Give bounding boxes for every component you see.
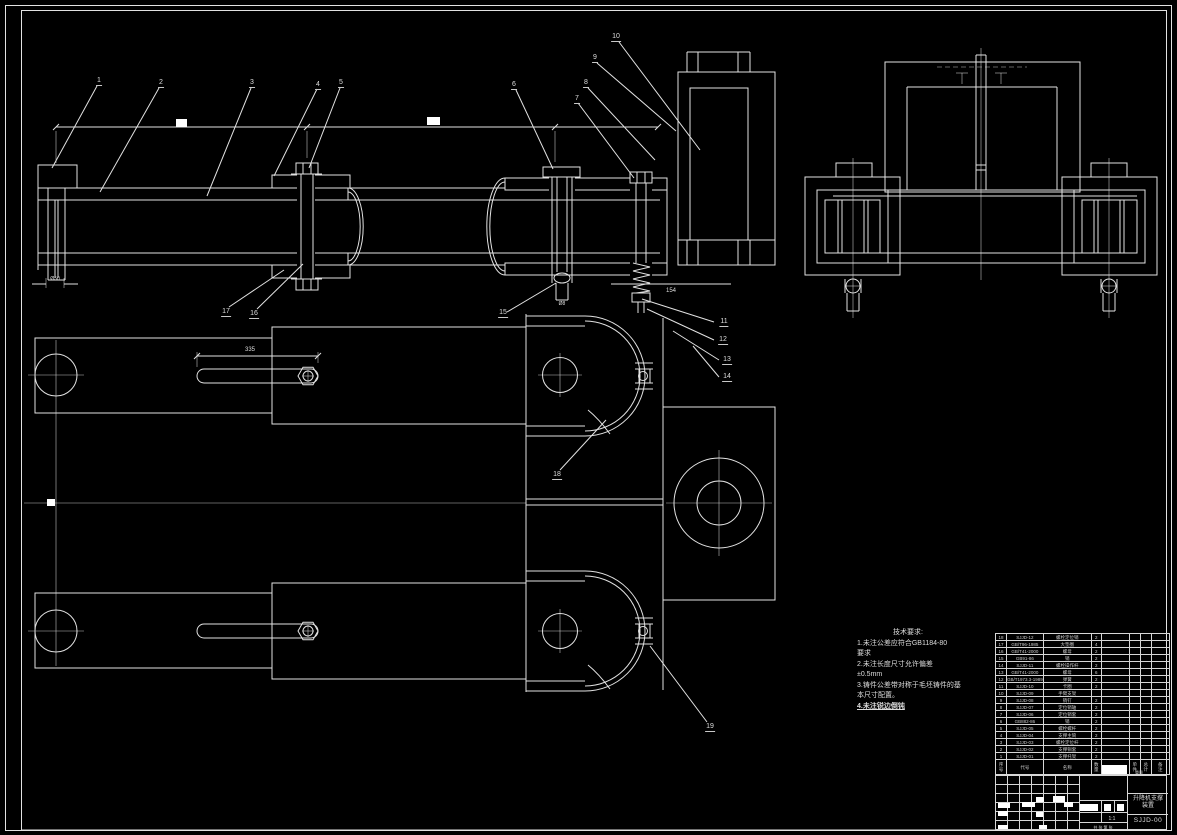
bom-cell: 17 [996,641,1007,648]
left-clamp [805,158,900,318]
redacted-field [1022,802,1035,807]
bom-cell: 7 [996,711,1007,718]
callout-4: 4 [315,81,321,90]
bom-cell [1129,746,1140,753]
bom-cell [1140,718,1151,725]
bom-cell: 定位销轴 [1043,704,1091,711]
tech-line: 本尺寸配置。 [857,691,991,702]
bom-cell: GB91-86 [1007,655,1044,662]
bom-cell: 14 [996,662,1007,669]
bom-cell [1151,690,1169,697]
bom-cell: 销 [1043,718,1091,725]
redacted-field [998,825,1008,829]
bom-header-cell: 备注 [1151,760,1169,775]
technical-requirements: 技术要求: 1.未注公差应符合GB1184-80 要求 2.未注长度尺寸允许偏差… [857,628,991,712]
top-hook [526,316,653,436]
bom-cell: 2 [1091,753,1101,760]
bom-cell [1151,662,1169,669]
bom-cell [1101,641,1129,648]
mounting-bracket [667,52,775,275]
bom-cell: 2 [1091,648,1101,655]
bom-cell [1101,753,1129,760]
bom-cell [1101,704,1129,711]
bom-cell [1151,725,1169,732]
callout-6: 6 [511,81,517,90]
bom-cell [1091,690,1101,697]
bom-cell: SJJD-03 [1007,739,1044,746]
redacted-field [998,803,1010,808]
bom-cell: 卡圈 [1043,683,1091,690]
bom-cell [1129,697,1140,704]
bom-cell: SJJD-05 [1007,725,1044,732]
bom-cell: 2 [996,746,1007,753]
bom-cell: 5 [996,725,1007,732]
bom-cell: 2 [1091,718,1101,725]
bom-cell [1129,662,1140,669]
bom-cell: GB/T41-2000 [1007,648,1044,655]
bom-cell [1101,648,1129,655]
bom-row: 12GB/T1973.3-1989弹簧2 [996,676,1170,683]
bom-row: 14SJJD-11螺栓操作杆2 [996,662,1170,669]
tech-title: 技术要求: [857,628,991,639]
bom-cell [1101,662,1129,669]
bom-cell: SJJD-11 [1007,662,1044,669]
bom-cell [1151,746,1169,753]
bom-row: 8SJJD-07定位销轴2 [996,704,1170,711]
bom-cell: 支撑主筒 [1043,732,1091,739]
bom-row: 17GB/T96-1985大垫圈4 [996,641,1170,648]
bom-cell [1129,718,1140,725]
bom-cell: 2 [1091,655,1101,662]
bom-cell [1140,662,1151,669]
bom-cell [1129,648,1140,655]
callout-7: 7 [574,95,580,104]
callout-15: 15 [498,309,508,318]
bom-cell [1151,634,1169,641]
bom-cell [1151,655,1169,662]
bom-cell [1151,753,1169,760]
bom-cell: 11 [996,683,1007,690]
callout-10: 10 [611,33,621,42]
bom-cell: SJJD-09 [1007,690,1044,697]
bom-cell: 螺栓操作杆 [1043,662,1091,669]
sheet-info: 共 张 第 张 [1080,824,1126,831]
dimension-text: 335 [245,347,255,353]
bom-cell [1140,704,1151,711]
dimension-text: 154 [666,288,676,294]
bottom-hook [526,571,653,691]
bom-cell [1151,683,1169,690]
bom-cell [1140,634,1151,641]
bom-cell: 2 [1091,662,1101,669]
callout-18: 18 [552,471,562,480]
bom-cell [1101,732,1129,739]
bom-cell [1129,683,1140,690]
bom-cell: GB882-86 [1007,718,1044,725]
bom-cell [1140,711,1151,718]
bom-cell [1129,641,1140,648]
bom-cell [1101,655,1129,662]
top-arm [28,327,526,424]
spring-rod [630,172,652,313]
bom-cell: 2 [1091,634,1101,641]
bom-cell [1151,739,1169,746]
tech-line: 3.铸件公差带对称于毛坯铸件的基 [857,681,991,692]
bom-cell: SJJD-10 [1007,683,1044,690]
bom-cell: SJJD-12 [1007,634,1044,641]
bom-cell: 2 [1091,676,1101,683]
bom-cell: 12 [996,676,1007,683]
bom-row: 10SJJD-09手臂支架 [996,690,1170,697]
bom-cell: 支撑托架 [1043,753,1091,760]
bom-cell: 4 [996,732,1007,739]
bom-cell [1140,676,1151,683]
redacted-field [1039,825,1047,829]
bom-cell: SJJD-08 [1007,697,1044,704]
bom-cell [1129,690,1140,697]
bom-cell: 2 [1091,725,1101,732]
callout-8: 8 [583,79,589,88]
bom-cell [1140,732,1151,739]
redacted-field [1064,802,1073,807]
bom-cell [1129,655,1140,662]
bom-cell [1151,704,1169,711]
tech-line: 1.未注公差应符合GB1184-80 [857,639,991,650]
bom-cell [1129,704,1140,711]
bom-cell [1151,676,1169,683]
right-clamp [1062,158,1157,318]
bom-cell [1101,683,1129,690]
bom-cell [1140,746,1151,753]
bom-cell: SJJD-07 [1007,704,1044,711]
bom-cell: 1 [996,753,1007,760]
bom-cell [1101,669,1129,676]
redacted-material-header [1102,765,1127,774]
bom-header-cell: 名称 [1043,760,1091,775]
bom-row: 13GB/T41-2000螺母6 [996,669,1170,676]
bom-cell [1101,725,1129,732]
bom-cell [1151,732,1169,739]
callout-19: 19 [705,723,715,732]
bom-cell: 定位销套 [1043,711,1091,718]
bom-header-cell: 序号 [996,760,1007,775]
bom-cell: 螺栓螺杆 [1043,725,1091,732]
bom-cell: 13 [996,669,1007,676]
bom-cell [1140,669,1151,676]
callout-13: 13 [722,356,732,365]
bom-cell: SJJD-04 [1007,732,1044,739]
bom-cell: 9 [996,697,1007,704]
callout-3: 3 [249,79,255,88]
bom-cell: 15 [996,655,1007,662]
plan-view [24,314,775,692]
drawing-scale: 1:1 [1099,816,1125,823]
tech-line: ±0.5mm [857,670,991,681]
bom-cell: 手臂支架 [1043,690,1091,697]
bom-cell [1129,739,1140,746]
bom-cell: 10 [996,690,1007,697]
bom-cell: 2 [1091,697,1101,704]
redacted-field [998,811,1008,816]
bom-cell: 大垫圈 [1043,641,1091,648]
bom-cell: 2 [1091,683,1101,690]
left-pin [48,188,65,280]
callout-17: 17 [221,308,231,317]
redacted-field [1117,804,1124,811]
bom-cell [1101,718,1129,725]
bom-cell [1101,634,1129,641]
bom-cell: SJJD-02 [1007,746,1044,753]
title-block: 升降机支撑 装置 SJJD-00 1:1 共 张 第 张 [995,775,1167,830]
bom-row: 11SJJD-10卡圈2 [996,683,1170,690]
callout-16: 16 [249,310,259,319]
section-view [38,52,775,313]
bom-row: 18SJJD-12螺栓定位销2 [996,634,1170,641]
bom-cell [1129,732,1140,739]
callout-9: 9 [592,54,598,63]
callout-12: 12 [718,336,728,345]
bom-row: 5SJJD-05螺栓螺杆2 [996,725,1170,732]
redacted-field [1080,804,1098,811]
bom-cell: SJJD-01 [1007,753,1044,760]
bom-cell [1101,697,1129,704]
bom-cell [1129,753,1140,760]
tech-line: 要求 [857,649,991,660]
bom-cell [1129,634,1140,641]
bom-cell [1140,753,1151,760]
bom-cell: 8 [996,704,1007,711]
bom-row: 1SJJD-01支撑托架2 [996,753,1170,760]
redaction-boxes [47,117,440,506]
bom-cell [1151,711,1169,718]
bom-cell: 2 [1091,704,1101,711]
bom-row: 16GB/T41-2000螺母2 [996,648,1170,655]
redacted-field [1104,804,1111,811]
callout-1: 1 [96,77,102,86]
bottom-arm [28,583,526,679]
bom-cell: 支撑铜套 [1043,746,1091,753]
bom-cell [1101,676,1129,683]
bom-cell [1151,697,1169,704]
bom-cell: SJJD-06 [1007,711,1044,718]
callout-2: 2 [158,79,164,88]
bom-cell: 螺母 [1043,648,1091,655]
bom-cell: 螺栓定位杆 [1043,739,1091,746]
bom-cell [1101,690,1129,697]
bom-cell [1101,739,1129,746]
bom-cell: 销钉 [1043,697,1091,704]
bom-header-cell: 代号 [1007,760,1044,775]
end-view [805,48,1157,318]
bom-cell [1151,641,1169,648]
bom-cell [1140,725,1151,732]
callout-14: 14 [722,373,732,382]
bom-cell [1140,641,1151,648]
bom-row: 3SJJD-03螺栓定位杆2 [996,739,1170,746]
bom-row: 15GB91-86销2 [996,655,1170,662]
dimension-text: Ø50 [50,276,59,282]
bom-cell [1140,683,1151,690]
bom-cell: 18 [996,634,1007,641]
drawing-number: SJJD-00 [1129,817,1167,824]
bom-cell: 销 [1043,655,1091,662]
bom-row: 2SJJD-02支撑铜套2 [996,746,1170,753]
callout-11: 11 [719,318,728,327]
dimension-lines [32,124,731,367]
bom-cell [1101,711,1129,718]
bom-cell: 2 [1091,711,1101,718]
tech-line: 2.未注长度尺寸允许偏差 [857,660,991,671]
bom-cell [1140,739,1151,746]
bom-cell [1151,718,1169,725]
callout-leaders [52,42,719,722]
callout-5: 5 [338,79,344,88]
bom-cell [1151,669,1169,676]
bom-cell [1129,676,1140,683]
bom-cell: 2 [1091,739,1101,746]
bom-cell [1140,648,1151,655]
bom-row: 7SJJD-06定位销套2 [996,711,1170,718]
bom-cell: 2 [1091,732,1101,739]
redacted-field [1036,797,1044,802]
bom-cell: GB/T96-1985 [1007,641,1044,648]
tech-line: 4.未注锐边倒钝 [857,702,991,713]
bom-header-cell: 数量 [1091,760,1101,775]
bom-cell: 6 [1091,669,1101,676]
bom-cell: 4 [1091,641,1101,648]
bom-cell: 6 [996,718,1007,725]
bom-cell: GB/T41-2000 [1007,669,1044,676]
bom-cell: 弹簧 [1043,676,1091,683]
bom-cell [1140,690,1151,697]
bom-cell [1101,746,1129,753]
bom-table: 18SJJD-12螺栓定位销217GB/T96-1985大垫圈416GB/T41… [995,633,1170,775]
drawing-sheet: { "drawing": { "title_block": { "title_l… [0,0,1177,835]
bom-cell [1129,711,1140,718]
bom-cell: 3 [996,739,1007,746]
bom-cell [1140,697,1151,704]
bom-cell [1129,669,1140,676]
bom-cell: 2 [1091,746,1101,753]
bom-cell [1129,725,1140,732]
bom-cell [1140,655,1151,662]
drawing-title: 升降机支撑 装置 [1129,796,1167,810]
bom-cell: GB/T1973.3-1989 [1007,676,1044,683]
redacted-field [1036,812,1043,817]
bom-cell: 螺母 [1043,669,1091,676]
dimension-text: Ø8 [559,301,566,307]
bom-cell: 螺栓定位销 [1043,634,1091,641]
bom-row: 4SJJD-04支撑主筒2 [996,732,1170,739]
bom-row: 6GB882-86销2 [996,718,1170,725]
bom-row: 9SJJD-08销钉2 [996,697,1170,704]
bom-cell [1151,648,1169,655]
bom-cell: 16 [996,648,1007,655]
